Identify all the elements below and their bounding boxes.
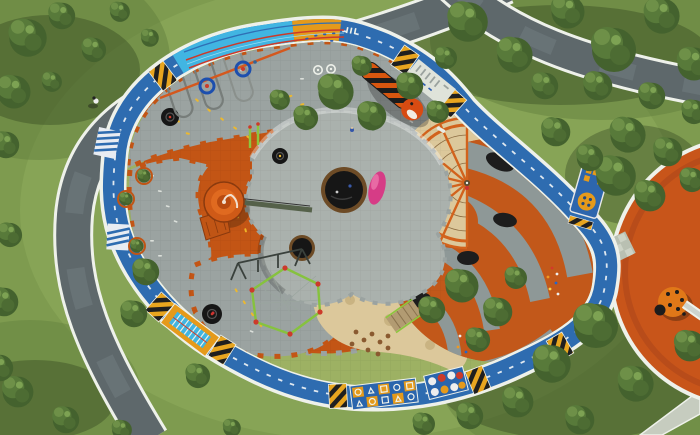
scene-canvas — [0, 0, 700, 435]
playground-aerial-render — [0, 0, 700, 435]
trampoline-pit-small — [289, 235, 315, 261]
trampoline-pit-large — [321, 167, 367, 213]
